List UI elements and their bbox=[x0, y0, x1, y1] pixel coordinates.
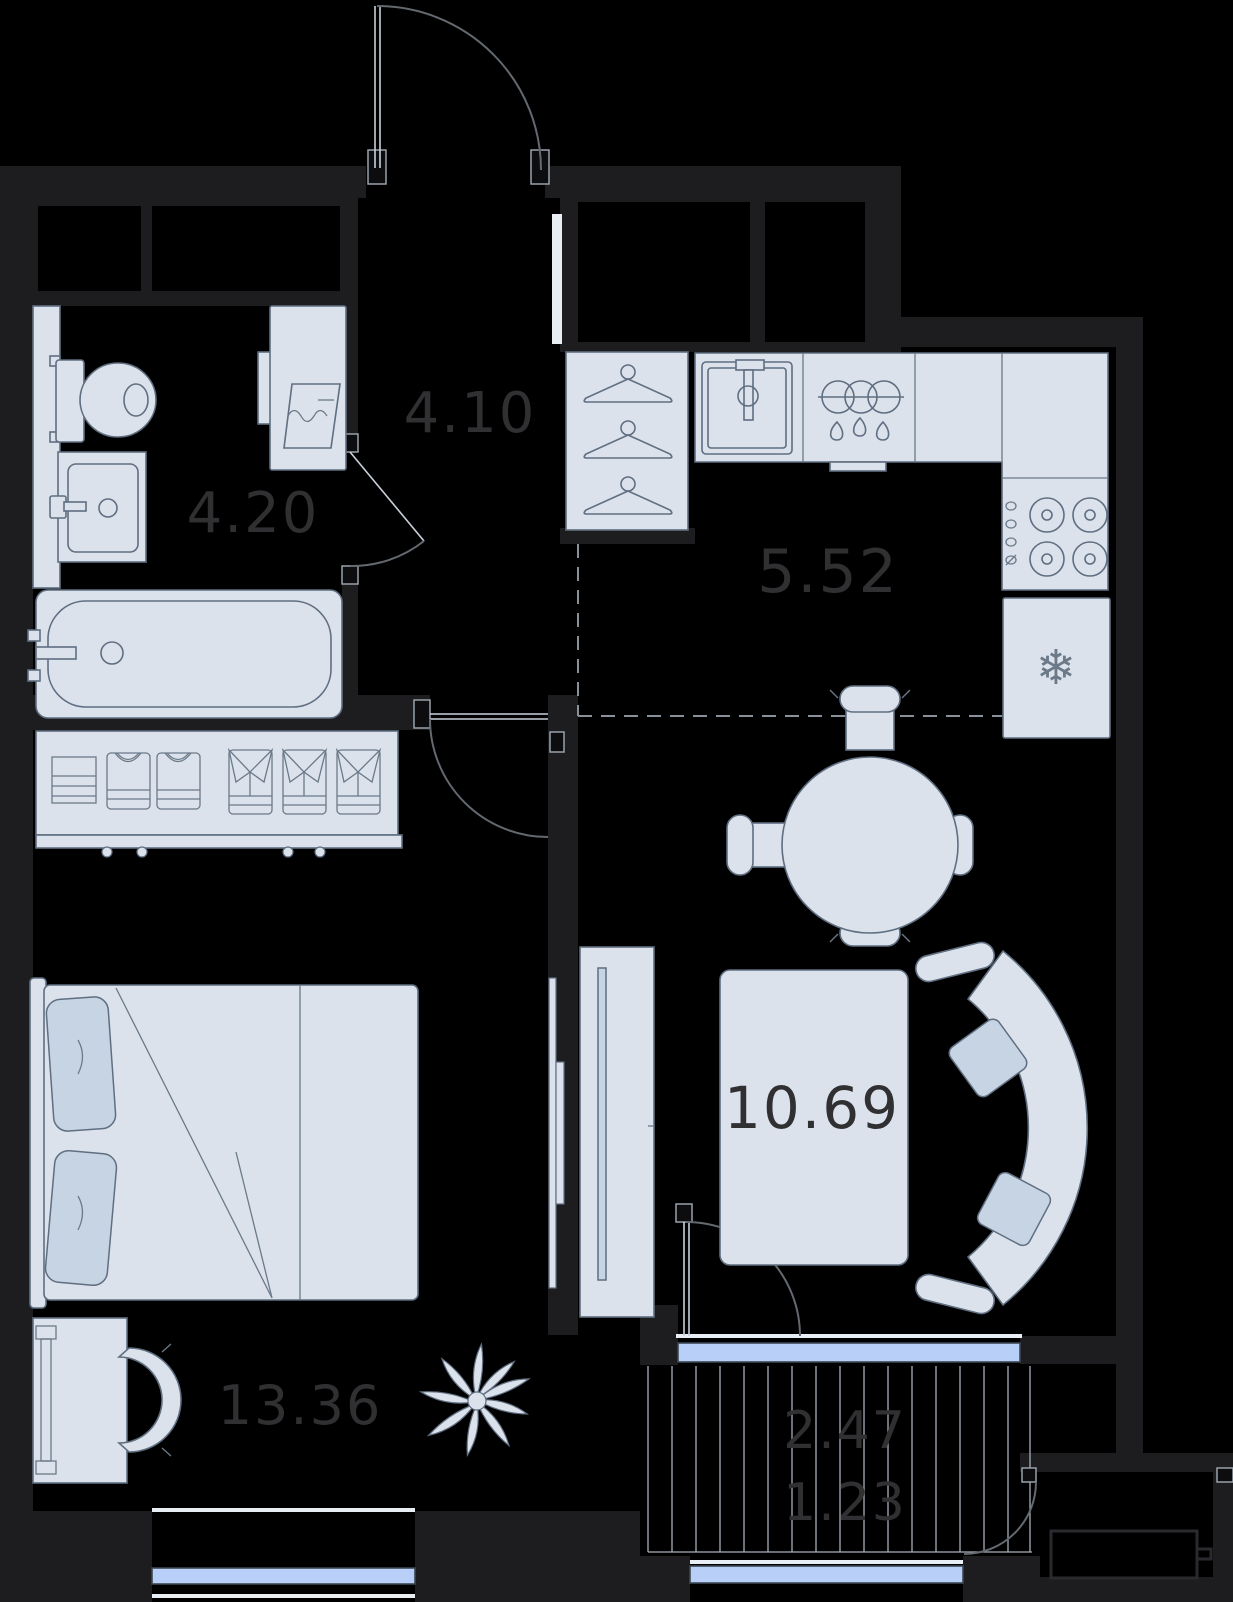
living-area-label: 10.69 bbox=[724, 1074, 900, 1142]
towel-rail-counter bbox=[33, 306, 60, 588]
washing-machine-icon bbox=[258, 306, 346, 470]
bedroom-area-label: 13.36 bbox=[218, 1374, 383, 1437]
neighbour-balcony-rail bbox=[1051, 1531, 1197, 1578]
refrigerator-icon: ❄ bbox=[1003, 598, 1110, 738]
balcony-window-glazing bbox=[690, 1566, 963, 1583]
floor-plan-svg: ❄ bbox=[0, 0, 1233, 1602]
bedroom-tv-icon bbox=[549, 978, 556, 1288]
bathroom-area-label: 4.20 bbox=[187, 481, 320, 546]
hall-closet bbox=[566, 352, 688, 530]
bedroom-window-glazing bbox=[152, 1568, 415, 1584]
desk-icon bbox=[33, 1318, 127, 1483]
bathtub-icon bbox=[28, 590, 342, 718]
freezer-snowflake-icon: ❄ bbox=[1036, 640, 1076, 696]
dining-chair-icon bbox=[727, 815, 787, 875]
balcony-window-sill bbox=[690, 1560, 963, 1564]
floor-plan-canvas: ❄ bbox=[0, 0, 1233, 1602]
bedroom-tv-bracket bbox=[556, 1062, 564, 1204]
wardrobe-icon bbox=[36, 731, 402, 857]
tv-icon bbox=[598, 968, 606, 1280]
bedroom-window-outer-sill bbox=[152, 1594, 415, 1598]
hallway-area-label: 4.10 bbox=[404, 381, 537, 446]
living-window-sill bbox=[676, 1334, 1022, 1338]
dining-table-icon bbox=[782, 757, 958, 933]
sink-icon bbox=[50, 452, 146, 562]
balcony-area-label: 2.47 bbox=[783, 1401, 907, 1461]
double-bed-icon bbox=[30, 978, 418, 1308]
bedroom-window-sill bbox=[152, 1508, 415, 1512]
duct-panel bbox=[552, 214, 562, 344]
toilet-icon bbox=[50, 356, 156, 442]
balcony-reduced-area-label: 1.23 bbox=[783, 1473, 907, 1533]
kitchen-area-label: 5.52 bbox=[757, 537, 899, 607]
tv-console-icon bbox=[580, 947, 654, 1317]
living-window-glazing bbox=[678, 1343, 1020, 1362]
